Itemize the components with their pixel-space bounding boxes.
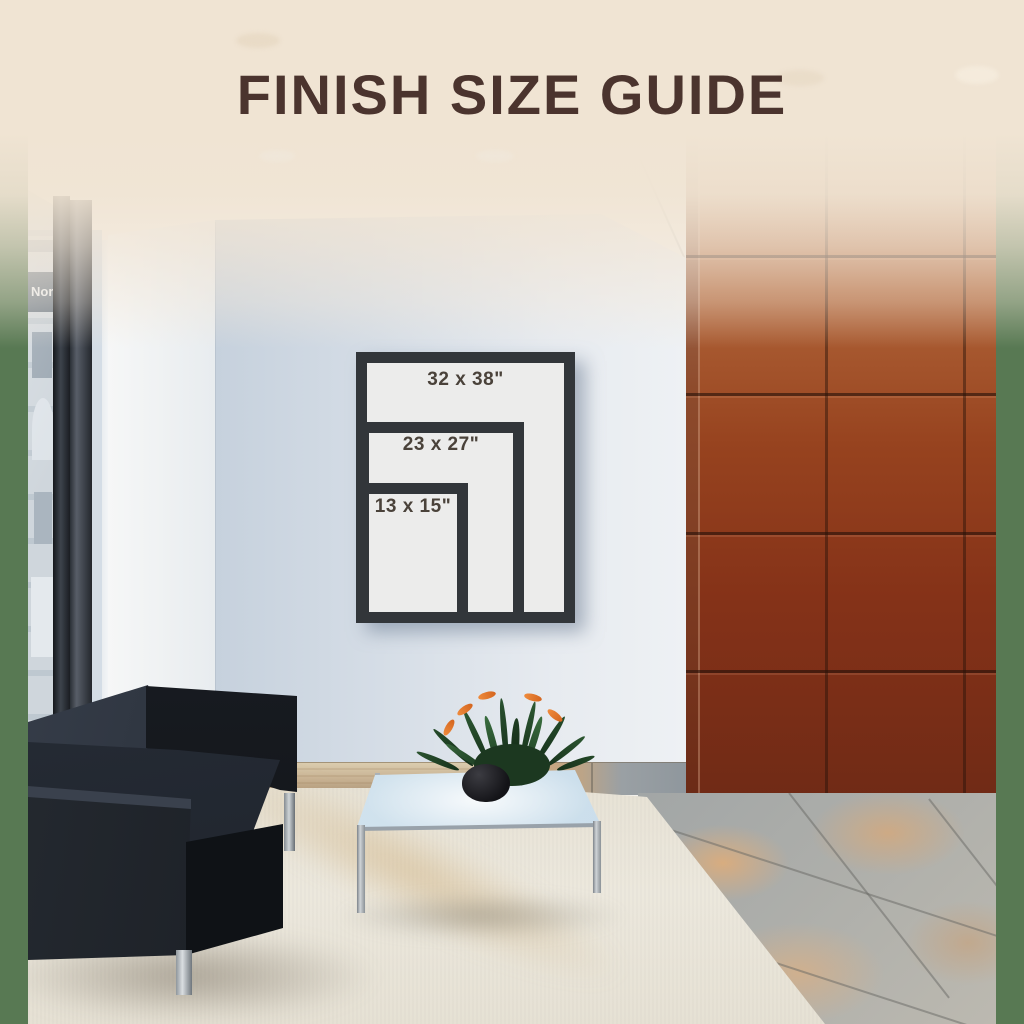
tile-wall <box>686 108 996 807</box>
window-mullion <box>53 196 70 762</box>
tile-wall-front-face <box>700 108 996 807</box>
sofa-leg <box>284 793 295 851</box>
size-guide-poster: Nor <box>0 0 1024 1024</box>
tile-wall-edge-highlight <box>698 108 700 807</box>
plant-flower <box>441 718 456 737</box>
ceiling-light <box>236 33 280 48</box>
wall-panel <box>108 214 215 762</box>
window-mullion <box>70 200 92 762</box>
plant-flower <box>546 707 564 724</box>
size-frames: 32 x 38" 23 x 27" 13 x 15" <box>356 352 575 623</box>
plant <box>426 690 596 805</box>
size-label-medium: 23 x 27" <box>369 433 513 456</box>
table-leg <box>593 821 601 893</box>
table-shadow <box>336 892 626 940</box>
size-label-small: 13 x 15" <box>369 494 457 518</box>
table-leg <box>357 825 365 913</box>
page-title: FINISH SIZE GUIDE <box>0 62 1024 127</box>
sofa-leg <box>176 950 192 995</box>
ceiling-light <box>259 150 295 162</box>
plant-flower <box>477 690 496 701</box>
ceiling-light <box>476 150 514 162</box>
frame-13x15: 13 x 15" <box>358 483 468 623</box>
wall-corner <box>215 222 216 762</box>
plant-pot <box>462 764 510 802</box>
window-pane <box>92 230 102 762</box>
size-label-large: 32 x 38" <box>367 363 564 391</box>
